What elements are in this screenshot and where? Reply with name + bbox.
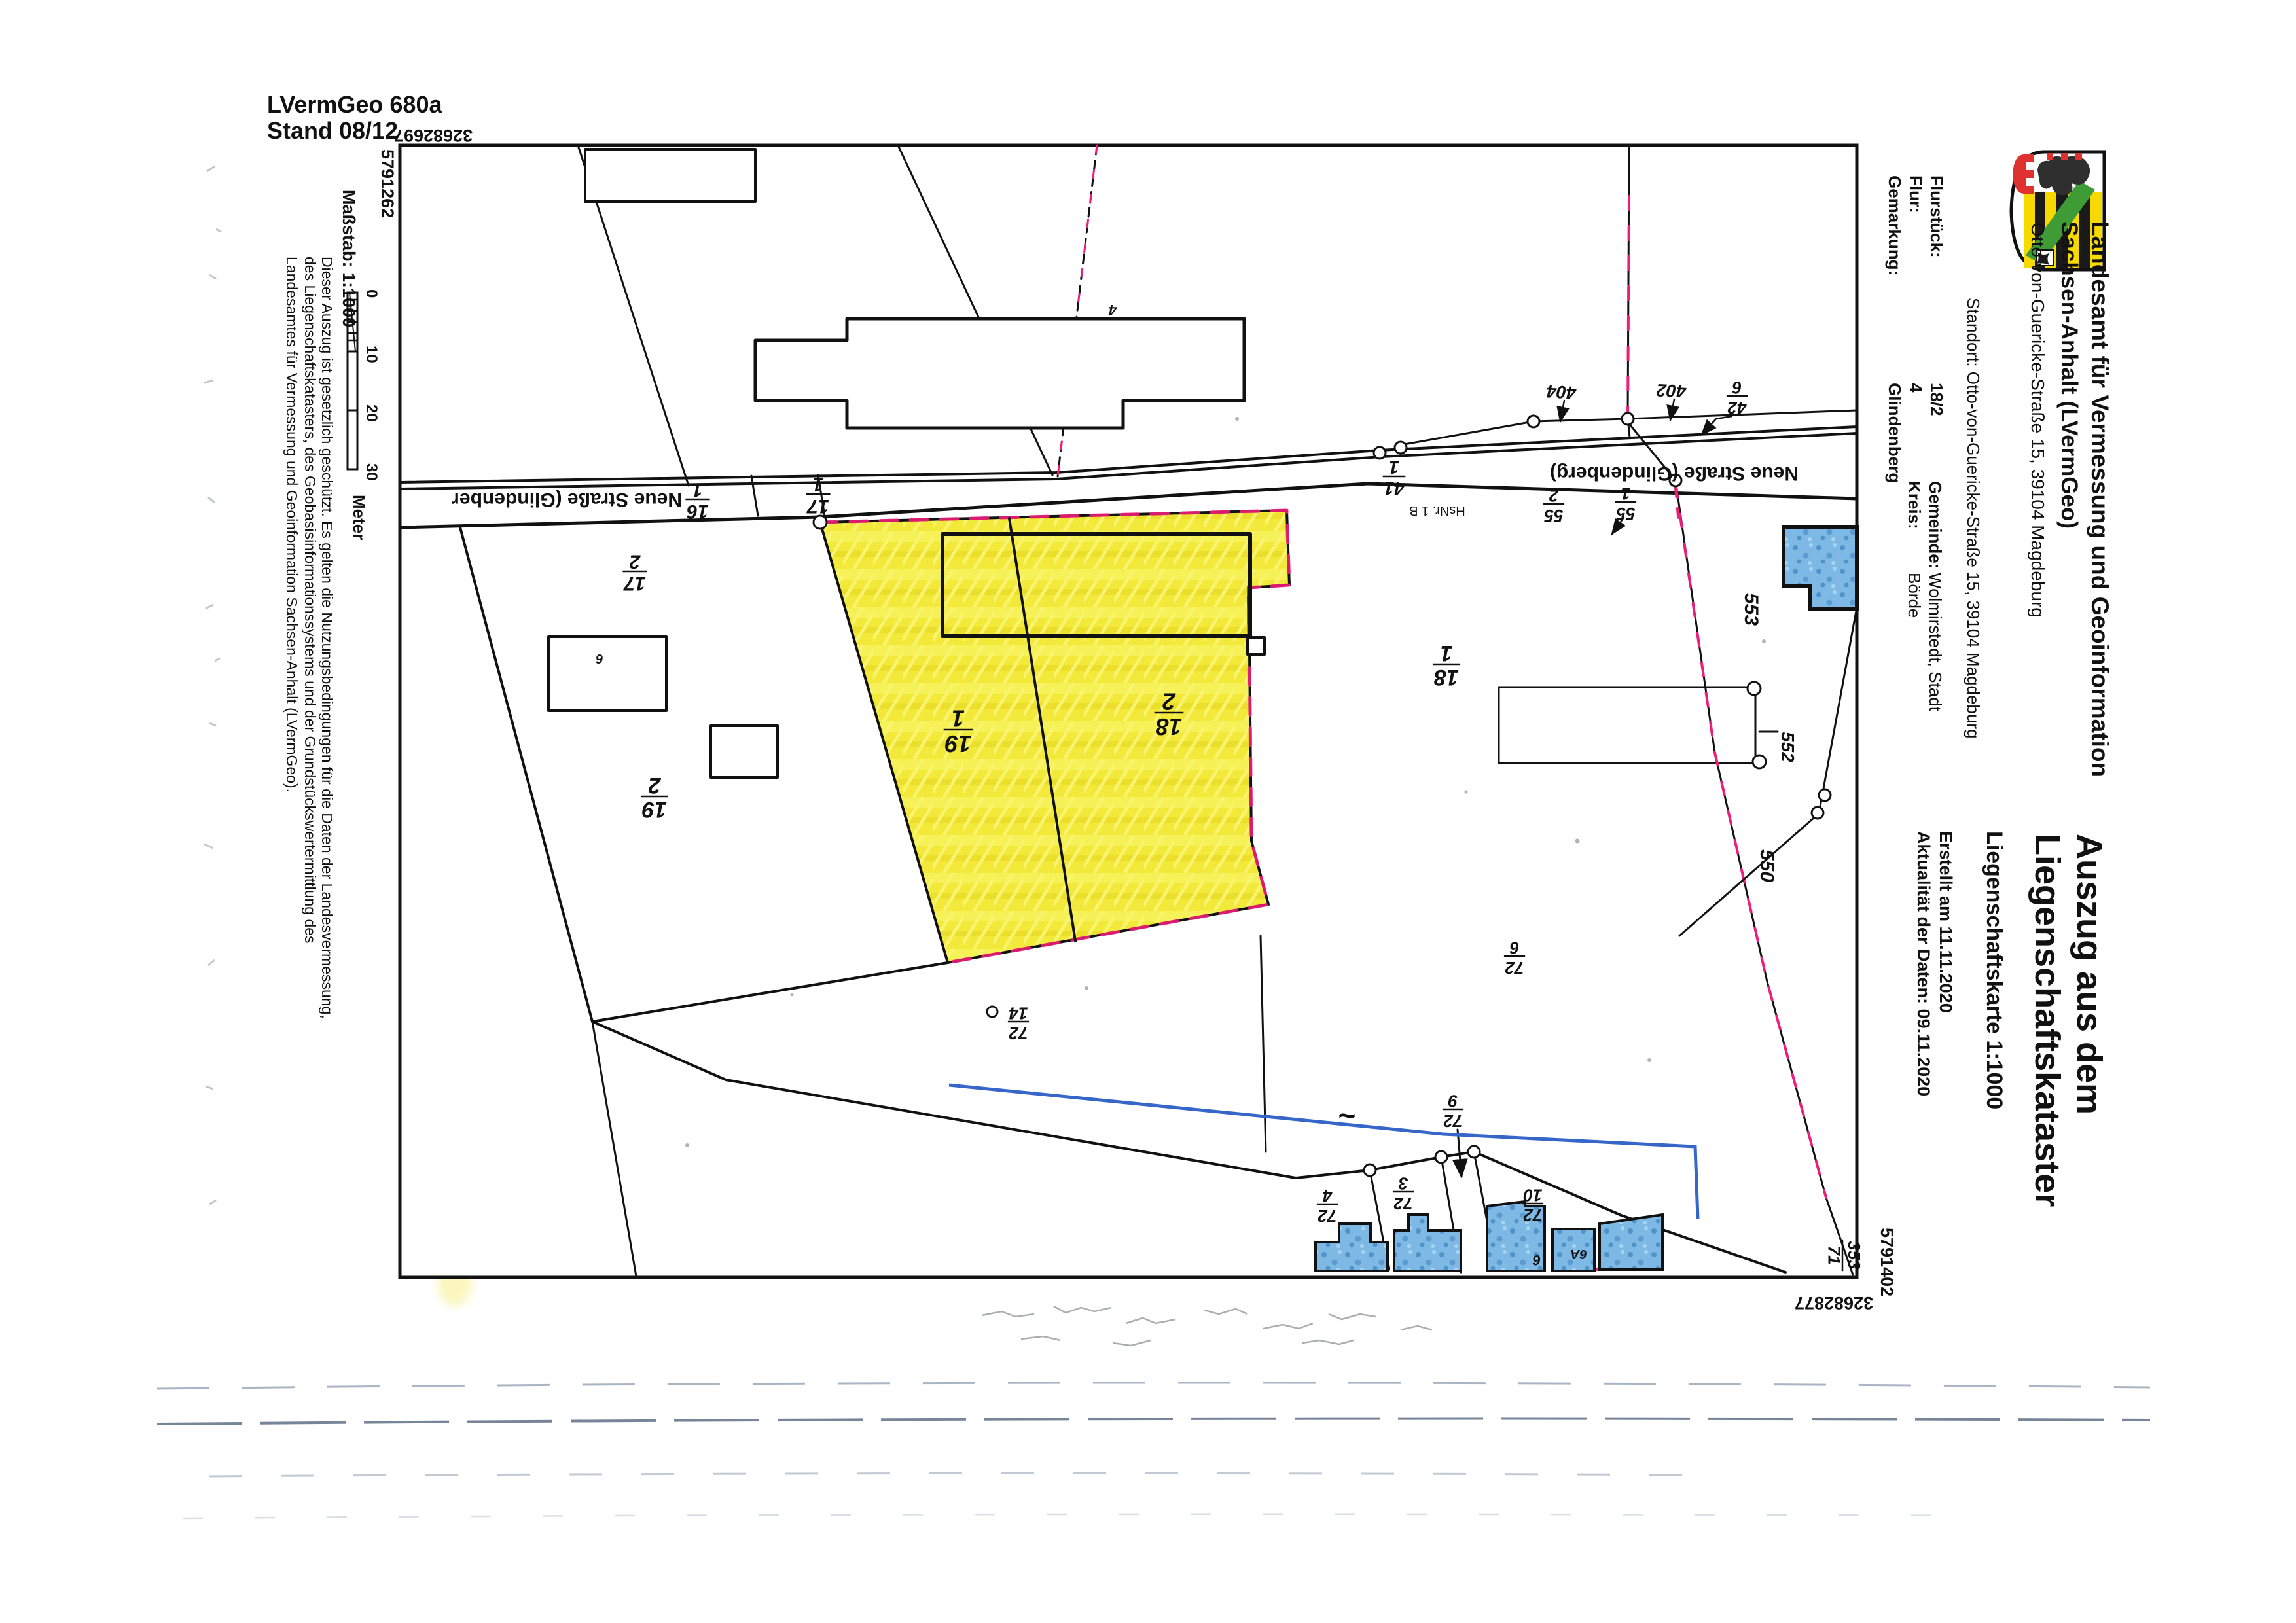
parcel-553: 553 xyxy=(1740,593,1762,626)
svg-text:71: 71 xyxy=(1825,1246,1844,1265)
scale-tick-20: 20 xyxy=(363,404,380,422)
svg-text:6: 6 xyxy=(1532,1252,1541,1268)
svg-text:16: 16 xyxy=(687,501,709,522)
coord-bottom-y: 5791402 xyxy=(1877,1228,1897,1296)
svg-text:552: 552 xyxy=(1778,732,1798,762)
svg-text:Standort: Otto-von-Guericke-St: Standort: Otto-von-Guericke-Straße 15, 3… xyxy=(1964,298,1983,738)
svg-text:6: 6 xyxy=(1509,938,1519,958)
svg-text:3: 3 xyxy=(1398,1174,1408,1194)
street-name-west: Neue Straße (Glindenber xyxy=(452,489,682,510)
svg-text:5791262: 5791262 xyxy=(378,149,397,218)
coord-bottom-x: 32682877 xyxy=(1795,1293,1873,1313)
svg-text:6A: 6A xyxy=(1570,1247,1587,1261)
svg-text:72: 72 xyxy=(1393,1194,1412,1213)
svg-text:9: 9 xyxy=(1448,1092,1458,1111)
form-stand: Stand 08/12 xyxy=(267,117,398,144)
svg-text:Meter: Meter xyxy=(350,495,369,540)
scale-tick-10: 10 xyxy=(363,346,380,363)
svg-text:41: 41 xyxy=(1384,478,1405,499)
house-number-6-blue: 6 xyxy=(1532,1252,1541,1268)
svg-text:Flurstück:: Flurstück: xyxy=(1927,175,1946,258)
svg-text:55: 55 xyxy=(1616,504,1635,524)
building-19-2-a xyxy=(548,637,666,711)
svg-text:1: 1 xyxy=(692,478,704,500)
parcel-404: 404 xyxy=(1546,382,1577,402)
svg-text:72: 72 xyxy=(1318,1206,1336,1226)
field-kreis-value: Börde xyxy=(1905,573,1924,618)
svg-text:des Liegenschaftskatasters, de: des Liegenschaftskatasters, des Geobasis… xyxy=(302,257,319,944)
svg-text:Sachsen-Anhalt (LVermGeo): Sachsen-Anhalt (LVermGeo) xyxy=(2056,221,2082,529)
field-gemeinde-label: Gemeinde: xyxy=(1926,481,1945,569)
scale-tick-30: 30 xyxy=(363,463,380,481)
parcel-402: 402 xyxy=(1656,380,1687,401)
agency-name-1: Landesamt für Vermessung und Geoinformat… xyxy=(2087,221,2113,777)
svg-text:Landesamtes für Vermessung und: Landesamtes für Vermessung und Geoinform… xyxy=(283,257,300,793)
svg-text:30: 30 xyxy=(363,463,380,481)
svg-text:55: 55 xyxy=(1544,506,1563,526)
building-north-small xyxy=(585,149,755,202)
svg-text:10: 10 xyxy=(1523,1186,1542,1205)
svg-text:Kreis:: Kreis: xyxy=(1905,481,1924,529)
svg-text:32682877: 32682877 xyxy=(1795,1293,1873,1313)
svg-text:Stand 08/12: Stand 08/12 xyxy=(267,117,398,144)
svg-text:5791402: 5791402 xyxy=(1877,1228,1897,1296)
svg-text:6: 6 xyxy=(1732,378,1742,398)
legal-line-2: des Liegenschaftskatasters, des Geobasis… xyxy=(302,257,319,944)
svg-text:42: 42 xyxy=(1727,398,1747,418)
svg-text:2: 2 xyxy=(629,550,641,572)
svg-text:72: 72 xyxy=(1523,1205,1542,1225)
svg-text:72: 72 xyxy=(1443,1111,1462,1131)
svg-text:Neue Straße (Glindenber: Neue Straße (Glindenber xyxy=(452,489,682,510)
svg-text:353: 353 xyxy=(1844,1241,1864,1270)
svg-text:LVermGeo 680a: LVermGeo 680a xyxy=(267,91,442,118)
svg-text:4: 4 xyxy=(1109,302,1117,318)
field-flur-label: Flur: xyxy=(1906,175,1926,213)
svg-text:Liegenschaftskarte 1:1000: Liegenschaftskarte 1:1000 xyxy=(1982,831,2007,1109)
house-number-6: 6 xyxy=(596,651,603,666)
svg-text:72: 72 xyxy=(1505,958,1524,978)
building-19-2-b xyxy=(711,726,778,777)
svg-text:553: 553 xyxy=(1740,593,1762,626)
building-blue-b5 xyxy=(1600,1215,1662,1270)
parcel-550: 550 xyxy=(1756,849,1778,882)
svg-text:19: 19 xyxy=(945,730,971,757)
svg-text:1: 1 xyxy=(813,473,824,495)
svg-text:Glindenberg: Glindenberg xyxy=(1885,383,1905,483)
legal-line-1: Dieser Auszug ist gesetzlich geschützt. … xyxy=(319,257,336,1019)
svg-text:72: 72 xyxy=(1009,1024,1028,1043)
svg-text:Wolmirstedt, Stadt: Wolmirstedt, Stadt xyxy=(1926,573,1945,712)
parcel-552: 552 xyxy=(1778,732,1798,762)
svg-text:Gemeinde:: Gemeinde: xyxy=(1926,481,1945,569)
svg-text:402: 402 xyxy=(1656,380,1687,401)
svg-text:1: 1 xyxy=(1441,641,1453,666)
svg-text:1: 1 xyxy=(952,705,965,732)
form-id: LVermGeo 680a xyxy=(267,91,442,118)
house-number-6a: 6A xyxy=(1570,1247,1587,1261)
scanned-cadastral-page: Auszug aus dem Liegenschaftskataster xyxy=(0,0,2296,1623)
parcel-72-14: 7214 xyxy=(1008,1004,1029,1043)
doc-subtitle: Liegenschaftskarte 1:1000 xyxy=(1982,831,2007,1109)
field-gemarkung-label: Gemarkung: xyxy=(1885,175,1905,276)
building-18-1 xyxy=(1499,687,1755,763)
svg-text:0: 0 xyxy=(363,289,380,298)
svg-text:Maßstab: 1:1000: Maßstab: 1:1000 xyxy=(339,190,359,327)
svg-text:2: 2 xyxy=(648,773,661,798)
svg-text:Dieser Auszug ist gesetzlich g: Dieser Auszug ist gesetzlich geschützt. … xyxy=(319,257,336,1019)
svg-text:404: 404 xyxy=(1546,382,1577,402)
svg-text:Auszug aus dem: Auszug aus dem xyxy=(2070,834,2109,1115)
scan-artifact-left-edge-marks xyxy=(204,166,221,1204)
svg-text:Otto-von-Guericke-Straße 15, 3: Otto-von-Guericke-Straße 15, 39104 Magde… xyxy=(2028,223,2048,618)
svg-text:Gemarkung:: Gemarkung: xyxy=(1885,175,1905,276)
doc-created: Erstellt am 11.11.2020 xyxy=(1936,831,1956,1013)
svg-text:Börde: Börde xyxy=(1905,573,1924,618)
svg-text:17: 17 xyxy=(806,495,829,517)
svg-text:20: 20 xyxy=(363,404,380,422)
coord-top-x: 32682697 xyxy=(394,126,473,145)
svg-text:Erstellt am 11.11.2020: Erstellt am 11.11.2020 xyxy=(1936,831,1956,1013)
scale-label: Maßstab: 1:1000 xyxy=(339,190,359,327)
svg-text:1: 1 xyxy=(1621,484,1630,504)
svg-text:Landesamt für Vermessung und G: Landesamt für Vermessung und Geoinformat… xyxy=(2087,221,2113,777)
agency-address: Otto-von-Guericke-Straße 15, 39104 Magde… xyxy=(2028,223,2048,618)
svg-text:6: 6 xyxy=(596,651,603,666)
street-name-east: Neue Straße (Glindenberg) xyxy=(1550,463,1799,484)
symbol-circle-72-14 xyxy=(987,1007,997,1017)
svg-text:2: 2 xyxy=(1162,688,1176,715)
legal-line-3: Landesamtes für Vermessung und Geoinform… xyxy=(283,257,300,793)
svg-text:Flur:: Flur: xyxy=(1906,175,1926,213)
building-annex-18-2 xyxy=(1247,637,1265,654)
parcel-72-10: 7210 xyxy=(1522,1186,1543,1225)
field-gemeinde-value: Wolmirstedt, Stadt xyxy=(1926,573,1945,712)
doc-title-2: Liegenschaftskataster xyxy=(2028,834,2067,1207)
svg-text:17: 17 xyxy=(623,573,646,594)
house-number-1b: HsNr. 1 B xyxy=(1409,503,1465,518)
svg-text:4: 4 xyxy=(1906,383,1926,393)
field-gemarkung-value: Glindenberg xyxy=(1885,383,1905,483)
svg-text:14: 14 xyxy=(1009,1004,1028,1024)
svg-text:Liegenschaftskataster: Liegenschaftskataster xyxy=(2028,834,2067,1207)
svg-text:HsNr. 1 B: HsNr. 1 B xyxy=(1409,503,1465,518)
water-tilde: ~ xyxy=(1338,1099,1356,1133)
doc-title-1: Auszug aus dem xyxy=(2070,834,2109,1115)
coord-top-y: 5791262 xyxy=(378,149,397,218)
svg-text:550: 550 xyxy=(1756,849,1778,882)
house-number-4: 4 xyxy=(1109,302,1117,318)
svg-text:32682697: 32682697 xyxy=(394,126,473,145)
agency-name-2: Sachsen-Anhalt (LVermGeo) xyxy=(2056,221,2082,529)
svg-text:4: 4 xyxy=(1322,1186,1333,1206)
field-flurstueck-value: 18/2 xyxy=(1927,383,1946,416)
scale-unit: Meter xyxy=(350,495,369,540)
agency-site: Standort: Otto-von-Guericke-Straße 15, 3… xyxy=(1964,298,1983,738)
svg-text:10: 10 xyxy=(363,346,380,363)
field-flur-value: 4 xyxy=(1906,383,1926,393)
scan-artifact-pencil-scribbles xyxy=(982,1306,1432,1346)
doc-currency: Aktualität der Daten: 09.11.2020 xyxy=(1914,831,1933,1096)
scale-tick-0: 0 xyxy=(363,289,380,298)
svg-text:Neue Straße (Glindenberg): Neue Straße (Glindenberg) xyxy=(1550,463,1799,484)
svg-text:1: 1 xyxy=(1389,457,1399,478)
field-kreis-label: Kreis: xyxy=(1905,481,1924,529)
svg-text:18: 18 xyxy=(1156,713,1182,740)
svg-text:18/2: 18/2 xyxy=(1927,383,1946,416)
field-flurstueck-label: Flurstück: xyxy=(1927,175,1946,258)
cadastral-map-scan: Auszug aus dem Liegenschaftskataster xyxy=(0,0,2296,1623)
svg-text:18: 18 xyxy=(1434,665,1459,690)
svg-text:2: 2 xyxy=(1549,486,1559,506)
svg-text:19: 19 xyxy=(642,797,667,822)
scan-artifact-bottom-streaks xyxy=(157,1383,2150,1518)
svg-text:~: ~ xyxy=(1338,1099,1356,1133)
svg-text:Aktualität der Daten: 09.11.20: Aktualität der Daten: 09.11.2020 xyxy=(1914,831,1933,1096)
